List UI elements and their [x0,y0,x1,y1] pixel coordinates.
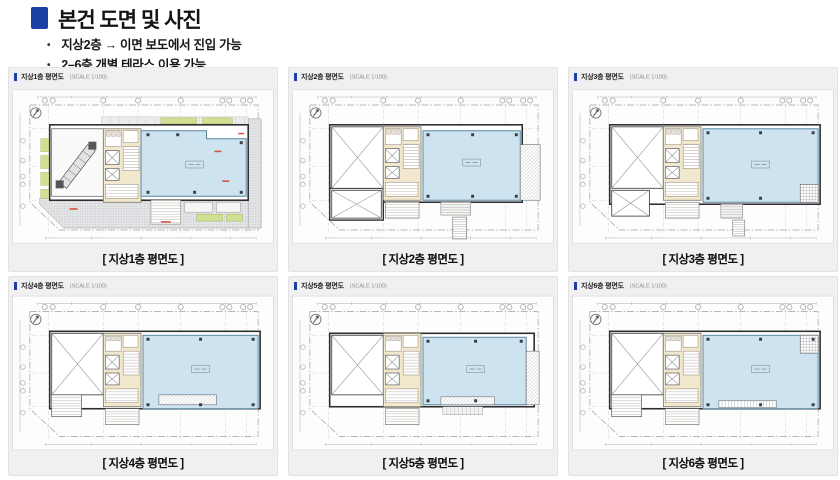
plan-caption: [ 지상4층 평면도 ] [9,455,277,475]
plan-scale: (SCALE 1/100) [350,74,387,80]
bullet-text: 지상2층 → 이면 보도에서 진입 가능 [61,36,241,54]
bullet-dot-icon: • [47,37,50,55]
floorplan-panel-6f: 지상6층 평면도 (SCALE 1/100) [ 지상6층 평면도 ] [568,276,838,476]
plan-header: 지상5층 평면도 (SCALE 1/100) [289,277,557,291]
blue-bar-icon [294,73,297,81]
floorplan-panel-2f: 지상2층 평면도 (SCALE 1/100) [ 지상2층 평면도 ] [288,67,558,272]
bullet-item: • 지상2층 → 이면 보도에서 진입 가능 [47,36,242,56]
plan-scale: (SCALE 1/100) [630,283,667,289]
blue-bar-icon [14,282,17,290]
floorplan-panel-4f: 지상4층 평면도 (SCALE 1/100) [ 지상4층 평면도 ] [8,276,278,476]
plan-title: 지상6층 평면도 [581,281,624,291]
plan-caption: [ 지상6층 평면도 ] [569,455,837,475]
title-bullet-square-icon [31,7,48,29]
plan-caption: [ 지상3층 평면도 ] [569,251,837,271]
plan-header: 지상1층 평면도 (SCALE 1/100) [9,68,277,82]
plan-caption: [ 지상2층 평면도 ] [289,251,557,271]
blue-bar-icon [14,73,17,81]
plan-scale: (SCALE 1/100) [70,283,107,289]
plan-title: 지상1층 평면도 [21,72,64,82]
plan-header: 지상4층 평면도 (SCALE 1/100) [9,277,277,291]
floorplan-drawing-3f [569,82,837,251]
plan-header: 지상6층 평면도 (SCALE 1/100) [569,277,837,291]
floorplan-panel-3f: 지상3층 평면도 (SCALE 1/100) [ 지상3층 평면도 ] [568,67,838,272]
floorplan-drawing-2f [289,82,557,251]
floorplan-panel-1f: 지상1층 평면도 (SCALE 1/100) [ 지상1층 평면도 ] [8,67,278,272]
plan-scale: (SCALE 1/100) [350,283,387,289]
plan-caption: [ 지상1층 평면도 ] [9,251,277,271]
blue-bar-icon [574,282,577,290]
floorplan-panel-5f: 지상5층 평면도 (SCALE 1/100) [ 지상5층 평면도 ] [288,276,558,476]
blue-bar-icon [574,73,577,81]
plan-title: 지상2층 평면도 [301,72,344,82]
plan-scale: (SCALE 1/100) [630,74,667,80]
plan-title: 지상4층 평면도 [21,281,64,291]
plan-header: 지상2층 평면도 (SCALE 1/100) [289,68,557,82]
floorplan-drawing-4f [9,291,277,455]
blue-bar-icon [294,282,297,290]
plan-title: 지상3층 평면도 [581,72,624,82]
plan-header: 지상3층 평면도 (SCALE 1/100) [569,68,837,82]
page-title: 본건 도면 및 사진 [58,4,201,34]
plan-title: 지상5층 평면도 [301,281,344,291]
plan-caption: [ 지상5층 평면도 ] [289,455,557,475]
floorplan-drawing-1f [9,82,277,251]
plan-scale: (SCALE 1/100) [70,74,107,80]
floorplan-drawing-5f [289,291,557,455]
floorplan-drawing-6f [569,291,837,455]
